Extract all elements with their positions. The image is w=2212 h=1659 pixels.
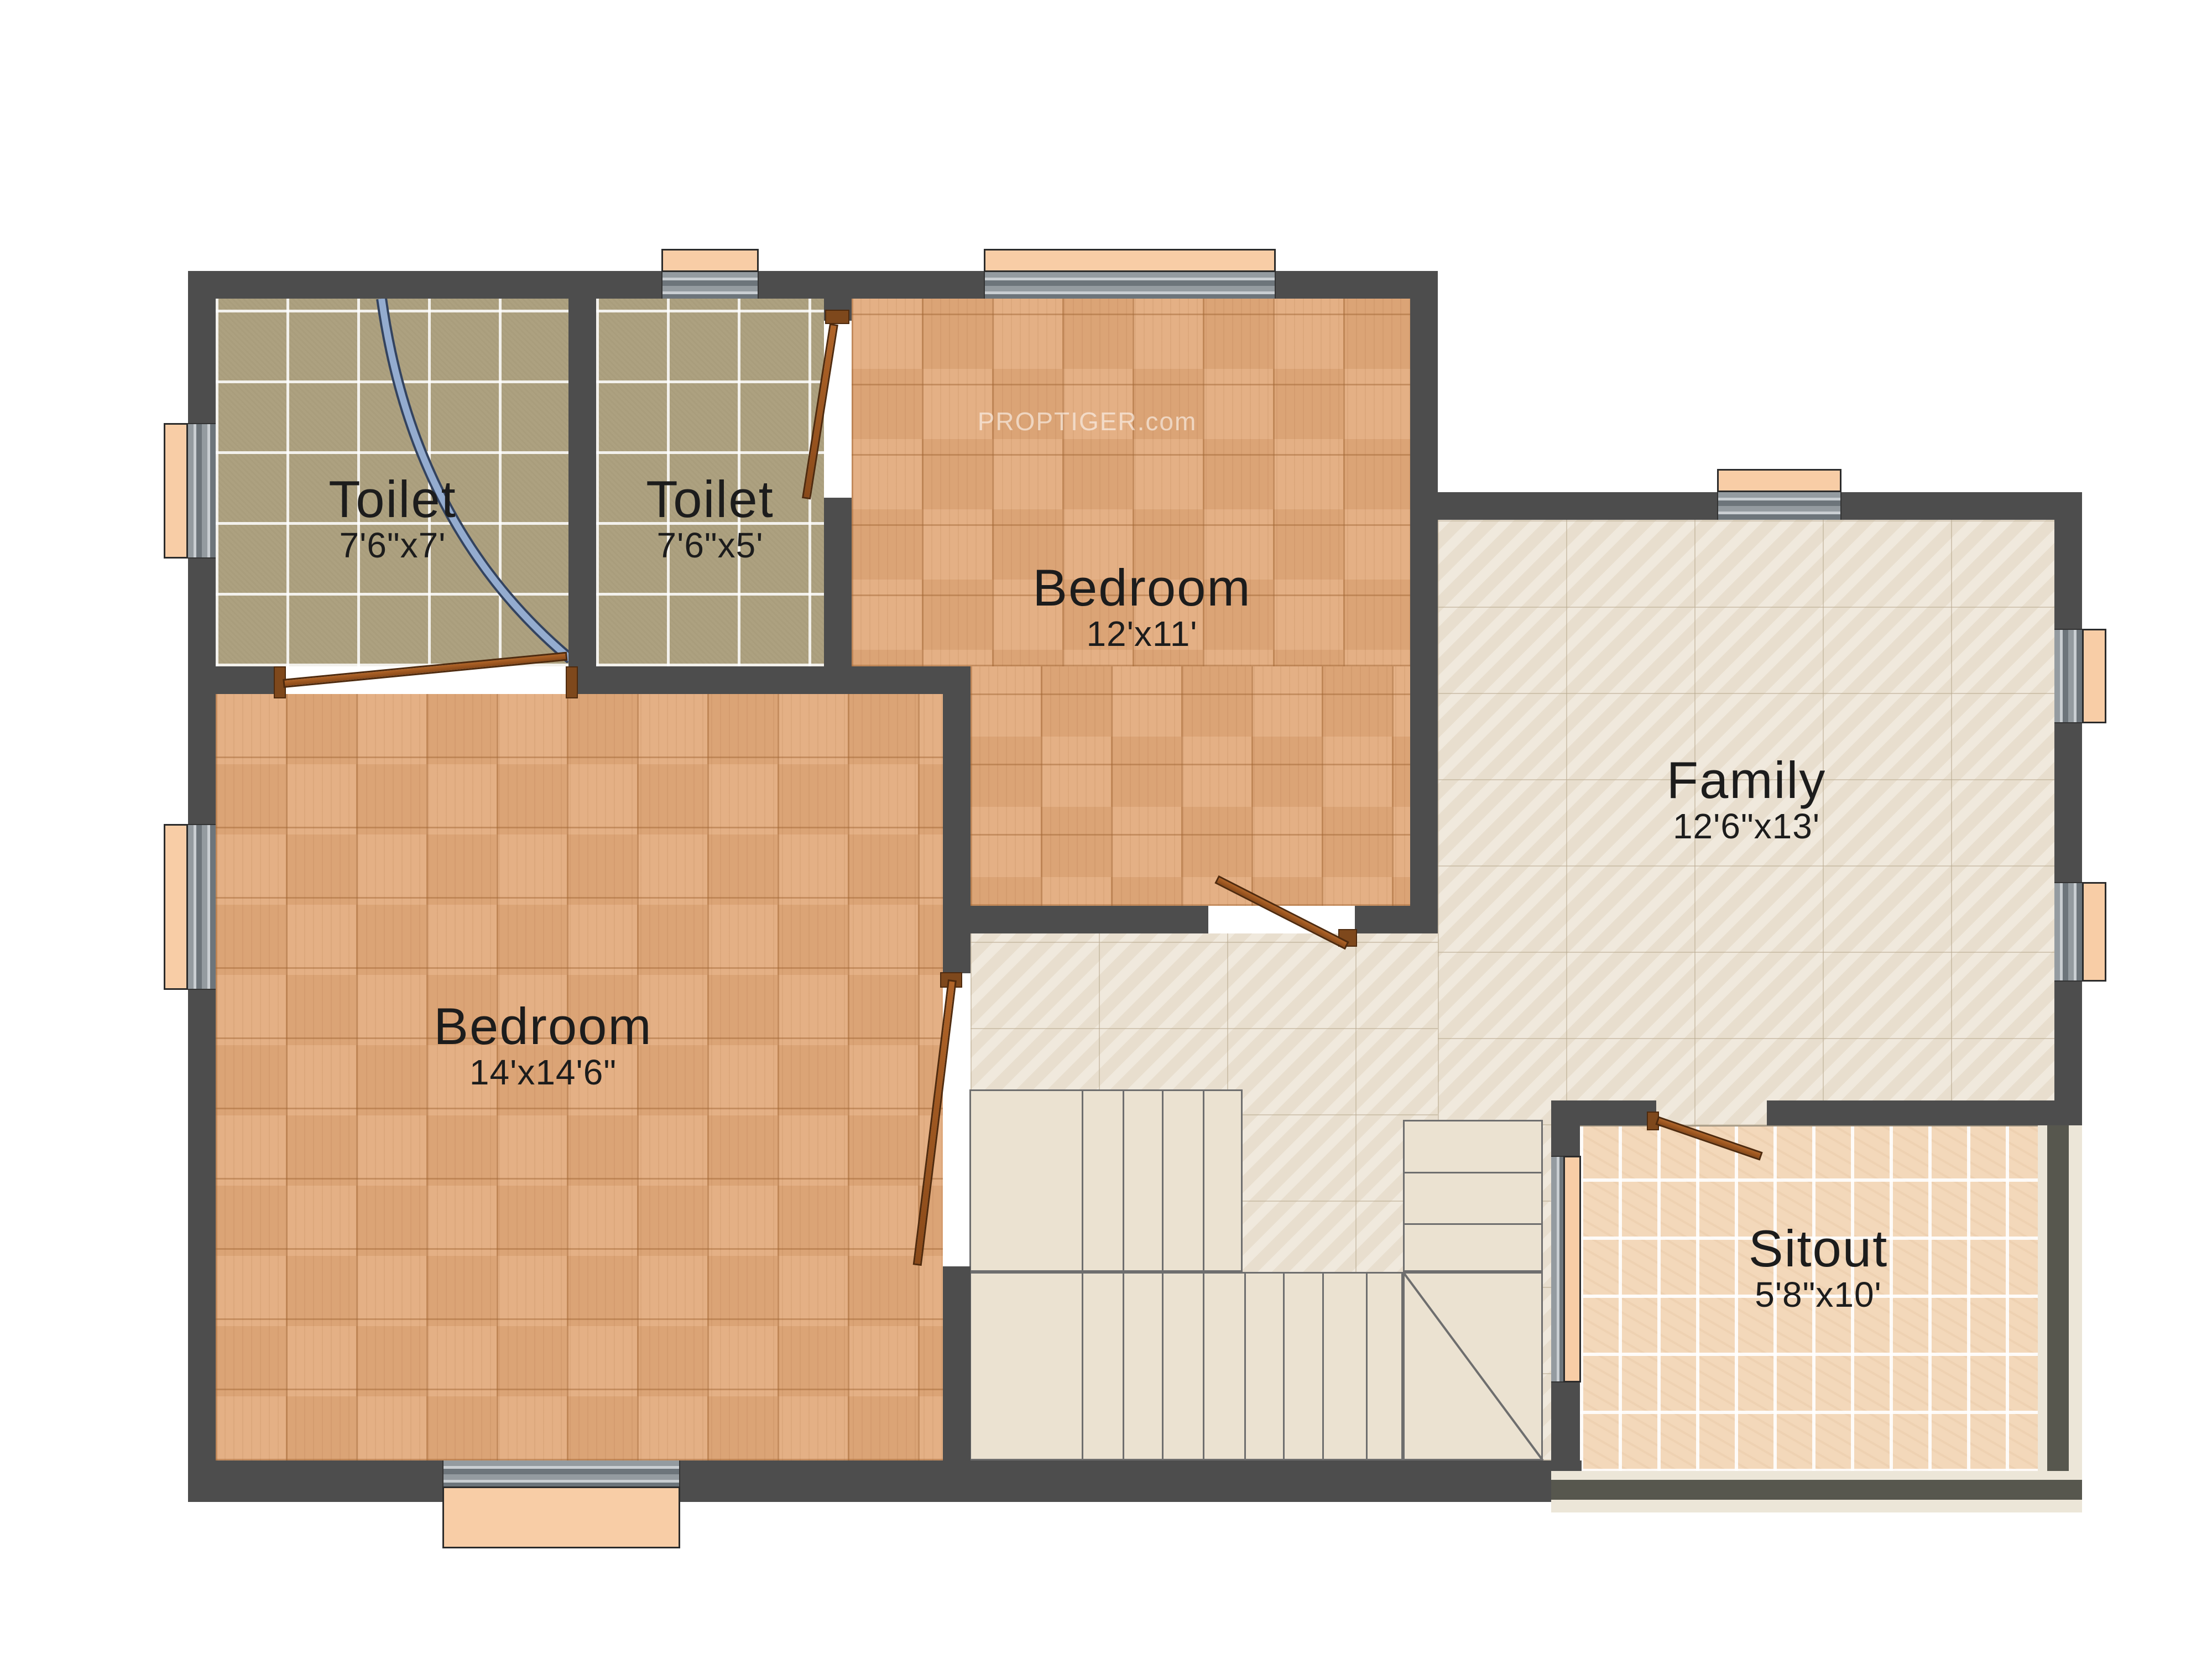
window-sill-toilet1-left — [188, 423, 216, 559]
toilet-1-dims: 7'6"x7' — [328, 525, 456, 566]
window-sill-bedroombottom-left — [188, 824, 216, 990]
window-toilet1-left — [164, 423, 188, 559]
wall-sitout-left-upper — [1551, 1125, 1580, 1156]
wall-bottom — [188, 1460, 1582, 1502]
bedroom-top-name: Bedroom — [1032, 562, 1251, 614]
window-bedroomtop-top — [984, 249, 1276, 272]
window-sill-toilet2-top — [661, 272, 759, 299]
window-bedroombottom-left — [164, 824, 188, 990]
sitout-label: Sitout 5'8"x10' — [1749, 1223, 1888, 1316]
bedroom-bottom-dims: 14'x14'6" — [434, 1052, 652, 1093]
stair-tread-line — [1162, 1274, 1164, 1459]
wall-family-bottom-left — [1551, 1100, 1656, 1125]
stair-tread-line — [1405, 1223, 1541, 1225]
window-sitout-left — [1563, 1156, 1581, 1383]
stair-tread-line — [1162, 1091, 1164, 1270]
toilet-1-door-jamb-right — [566, 666, 578, 698]
wall-bedroomtop-family — [1410, 271, 1438, 932]
stair-tread-line — [1123, 1274, 1124, 1459]
toilet-2-door-hinge — [825, 310, 849, 324]
family-name: Family — [1667, 754, 1827, 806]
sitout-rail-right — [2038, 1125, 2082, 1512]
wall-toilet-divider — [568, 299, 596, 666]
window-sill-sitout-left — [1551, 1156, 1563, 1383]
toilet-2-name: Toilet — [646, 473, 774, 525]
family-dims: 12'6"x13' — [1667, 806, 1827, 847]
window-family-right-lower — [2082, 882, 2106, 982]
stair-tread-line — [1283, 1274, 1285, 1459]
window-family-right-upper — [2082, 629, 2106, 723]
family-label: Family 12'6"x13' — [1667, 754, 1827, 847]
stair-tread-line — [1405, 1172, 1541, 1173]
window-sill-family-top — [1717, 492, 1841, 520]
wall-right-family — [2054, 492, 2082, 1125]
bedroom-bottom-label: Bedroom 14'x14'6" — [434, 1000, 652, 1093]
bedroom-top-floor-lower — [971, 666, 1410, 906]
floor-plan: Toilet 7'6"x7' Toilet 7'6"x5' Bedroom 12… — [0, 0, 2212, 1659]
wall-bedrooms-vertical-lower — [943, 1266, 971, 1460]
stair-tread-line — [1082, 1274, 1083, 1459]
bedroom-top-dims: 12'x11' — [1032, 614, 1251, 655]
toilet-1-name: Toilet — [328, 473, 456, 525]
stairs-winder — [1403, 1272, 1543, 1460]
stair-tread-line — [1082, 1091, 1083, 1270]
window-sill-bedroombottom-bottom — [442, 1460, 680, 1486]
wall-bedroomtop-bottom-left — [971, 906, 1208, 933]
toilet-1-label: Toilet 7'6"x7' — [328, 473, 456, 566]
bedroom-bottom-name: Bedroom — [434, 1000, 652, 1052]
stair-tread-line — [1203, 1091, 1204, 1270]
wall-bedroomtop-bottom-right — [1355, 906, 1438, 933]
window-sill-bedroomtop-top — [984, 272, 1276, 299]
stair-tread-line — [1203, 1274, 1204, 1459]
stair-tread-line — [1244, 1274, 1246, 1459]
window-toilet2-top — [661, 249, 759, 272]
watermark: PROPTIGER.com — [978, 406, 1197, 436]
window-family-top — [1717, 469, 1841, 492]
wall-toilets-bottom-left — [216, 666, 282, 694]
sitout-rail-bottom — [1551, 1471, 2082, 1512]
toilet-2-dims: 7'6"x5' — [646, 525, 774, 566]
window-sill-family-right-upper — [2054, 629, 2082, 723]
stairs-landing — [1403, 1120, 1543, 1272]
wall-toilet2-bedroom-lower — [824, 498, 852, 666]
sitout-dims: 5'8"x10' — [1749, 1275, 1888, 1316]
stairs-upper-flight — [969, 1089, 1243, 1272]
window-bedroombottom-bottom — [442, 1486, 680, 1548]
bedroom-top-label: Bedroom 12'x11' — [1032, 562, 1251, 655]
stair-tread-line — [1123, 1091, 1124, 1270]
wall-family-bottom-right — [1767, 1100, 2054, 1125]
stairs-lower-flight — [969, 1272, 1403, 1460]
wall-bedrooms-vertical-upper — [943, 666, 971, 973]
stair-tread-line — [1366, 1274, 1368, 1459]
sitout-name: Sitout — [1749, 1223, 1888, 1275]
window-sill-family-right-lower — [2054, 882, 2082, 982]
stair-tread-line — [1322, 1274, 1324, 1459]
toilet-2-label: Toilet 7'6"x5' — [646, 473, 774, 566]
wall-toilets-bottom-right — [570, 666, 943, 694]
